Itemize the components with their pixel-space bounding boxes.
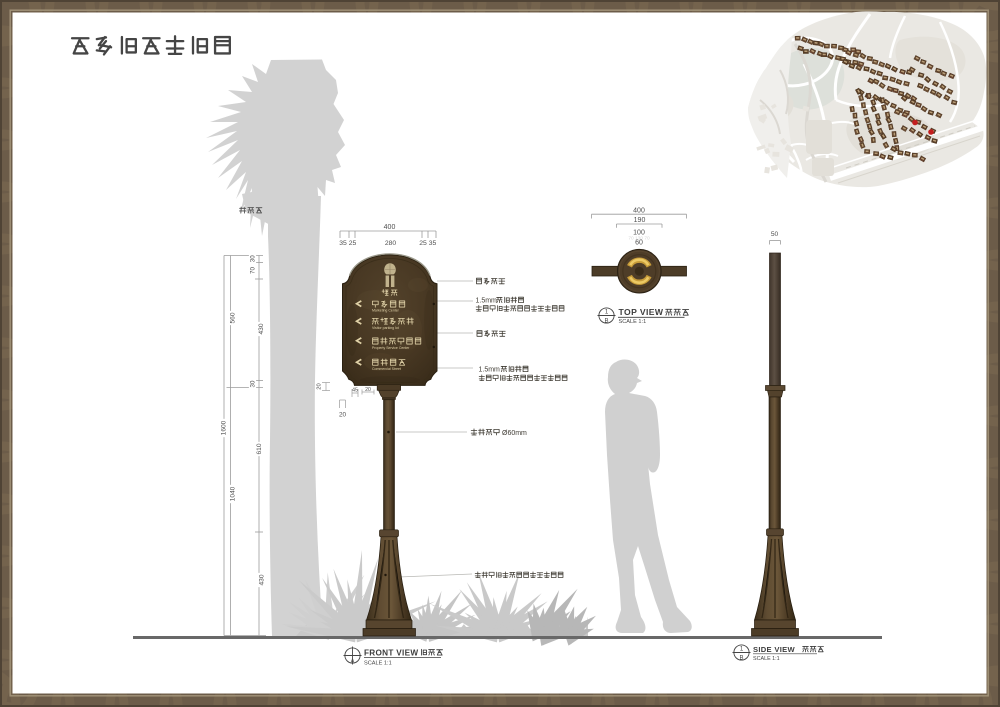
svg-text:SCALE 1:1: SCALE 1:1 xyxy=(619,319,647,325)
svg-text:100: 100 xyxy=(633,230,645,237)
svg-text:25: 25 xyxy=(419,240,427,247)
svg-text:70: 70 xyxy=(250,267,257,274)
svg-text:400: 400 xyxy=(384,224,396,231)
svg-text:Commercial Street: Commercial Street xyxy=(372,367,401,371)
svg-text:20: 20 xyxy=(316,383,322,389)
svg-text:280: 280 xyxy=(385,240,397,247)
svg-text:1.5mm: 1.5mm xyxy=(476,298,498,305)
svg-text:Property Service Center: Property Service Center xyxy=(372,346,410,350)
svg-text:Marketing Center: Marketing Center xyxy=(372,309,400,313)
svg-text:Ø60mm: Ø60mm xyxy=(502,430,527,437)
svg-text:45: 45 xyxy=(352,388,358,394)
svg-text:430: 430 xyxy=(259,574,266,585)
svg-text:Visitor parking lot: Visitor parking lot xyxy=(372,326,399,330)
svg-text:35: 35 xyxy=(429,240,437,247)
svg-text:610: 610 xyxy=(256,443,263,454)
svg-text:560: 560 xyxy=(230,312,237,323)
svg-text:B: B xyxy=(604,319,608,325)
svg-text:30: 30 xyxy=(250,255,257,262)
svg-text:A: A xyxy=(350,659,354,665)
svg-text:1600: 1600 xyxy=(221,420,228,435)
svg-text:25: 25 xyxy=(349,240,357,247)
svg-text:60: 60 xyxy=(635,240,643,247)
svg-text:SCALE 1:1: SCALE 1:1 xyxy=(364,660,392,666)
svg-text:1040: 1040 xyxy=(230,486,237,501)
svg-text:400: 400 xyxy=(633,207,645,214)
svg-text:1.5mm: 1.5mm xyxy=(479,367,501,374)
svg-text:B: B xyxy=(739,656,743,662)
svg-text:20: 20 xyxy=(339,412,347,419)
svg-text:SCALE 1:1: SCALE 1:1 xyxy=(753,656,780,662)
svg-text:SIDE VIEW: SIDE VIEW xyxy=(753,645,795,654)
svg-text:FRONT VIEW: FRONT VIEW xyxy=(364,648,418,657)
svg-text:35: 35 xyxy=(339,240,347,247)
svg-text:TOP VIEW: TOP VIEW xyxy=(619,307,664,317)
svg-text:430: 430 xyxy=(258,323,265,334)
svg-text:20: 20 xyxy=(365,387,371,393)
svg-text:190: 190 xyxy=(634,217,646,224)
svg-text:50: 50 xyxy=(771,231,779,238)
svg-text:30: 30 xyxy=(250,380,257,387)
